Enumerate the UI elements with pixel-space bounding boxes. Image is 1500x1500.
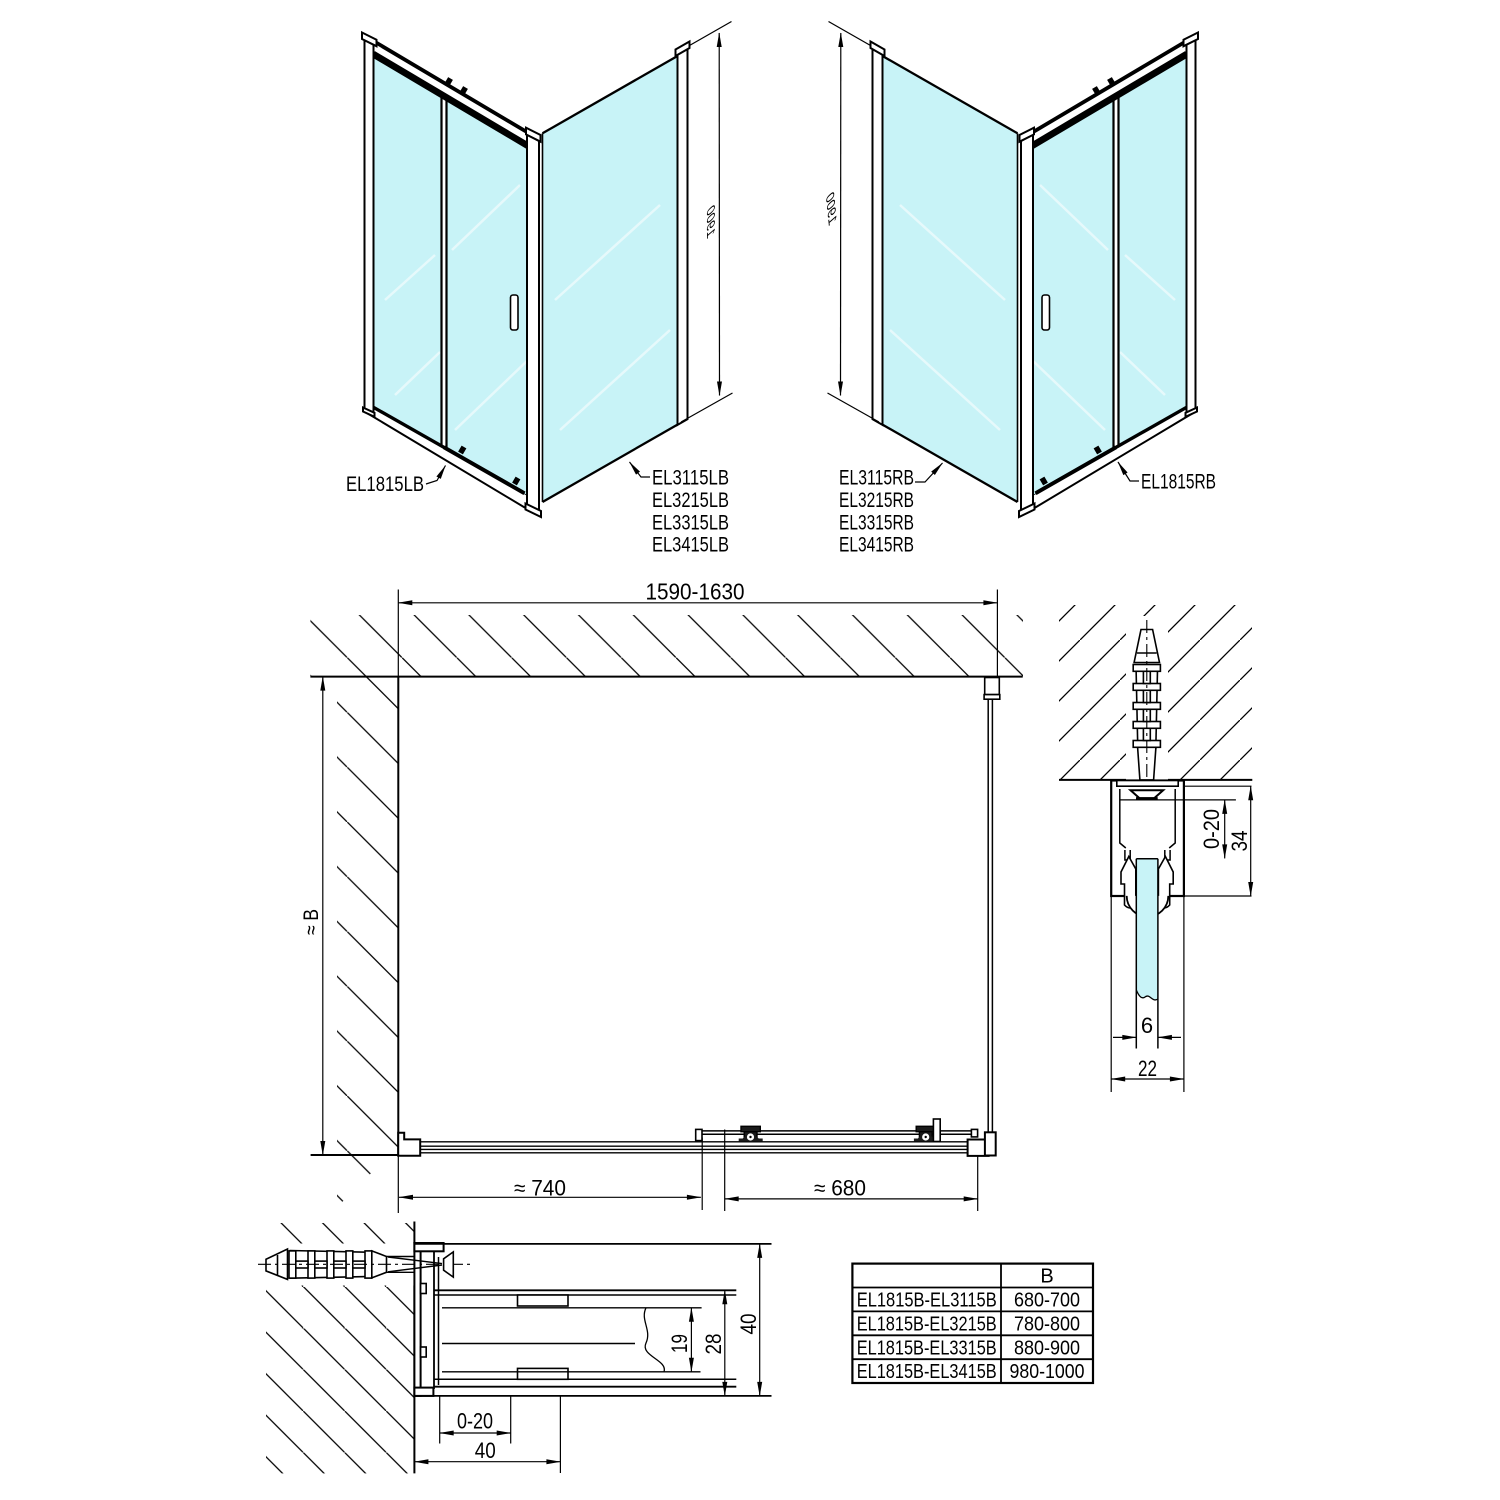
svg-text:B: B <box>1040 1266 1053 1288</box>
svg-text:EL1815B-EL3115B: EL1815B-EL3115B <box>857 1290 997 1312</box>
svg-text:22: 22 <box>1138 1056 1157 1081</box>
svg-text:EL1815B-EL3215B: EL1815B-EL3215B <box>857 1313 997 1335</box>
svg-text:EL3115RB: EL3115RB <box>839 467 914 490</box>
svg-text:0-20: 0-20 <box>1199 809 1224 849</box>
svg-text:34: 34 <box>1227 831 1252 852</box>
svg-text:EL3415RB: EL3415RB <box>839 534 914 557</box>
svg-text:40: 40 <box>736 1314 761 1335</box>
svg-text:≈ 740: ≈ 740 <box>514 1176 566 1201</box>
svg-text:6: 6 <box>1141 1013 1153 1038</box>
svg-text:880-900: 880-900 <box>1014 1337 1080 1359</box>
svg-text:680-700: 680-700 <box>1014 1290 1080 1312</box>
svg-text:≈ 680: ≈ 680 <box>814 1176 866 1201</box>
svg-text:780-800: 780-800 <box>1014 1313 1080 1335</box>
svg-text:EL1815B-EL3315B: EL1815B-EL3315B <box>857 1337 997 1359</box>
svg-text:EL3315RB: EL3315RB <box>839 512 914 535</box>
svg-text:EL1815LB: EL1815LB <box>346 473 424 496</box>
svg-text:EL1815RB: EL1815RB <box>1141 471 1216 494</box>
svg-text:19: 19 <box>667 1334 692 1353</box>
svg-text:≈ B: ≈ B <box>300 909 323 935</box>
svg-text:0-20: 0-20 <box>457 1409 493 1434</box>
svg-text:40: 40 <box>475 1438 496 1463</box>
svg-text:980-1000: 980-1000 <box>1010 1361 1085 1383</box>
svg-text:EL1815B-EL3415B: EL1815B-EL3415B <box>857 1361 997 1383</box>
svg-text:EL3215RB: EL3215RB <box>839 489 914 512</box>
svg-text:1590-1630: 1590-1630 <box>646 579 745 605</box>
svg-text:EL3315LB: EL3315LB <box>652 512 729 535</box>
svg-text:EL3115LB: EL3115LB <box>652 467 729 490</box>
svg-text:EL3215LB: EL3215LB <box>652 489 729 512</box>
svg-text:EL3415LB: EL3415LB <box>652 534 729 557</box>
svg-text:28: 28 <box>701 1334 726 1355</box>
